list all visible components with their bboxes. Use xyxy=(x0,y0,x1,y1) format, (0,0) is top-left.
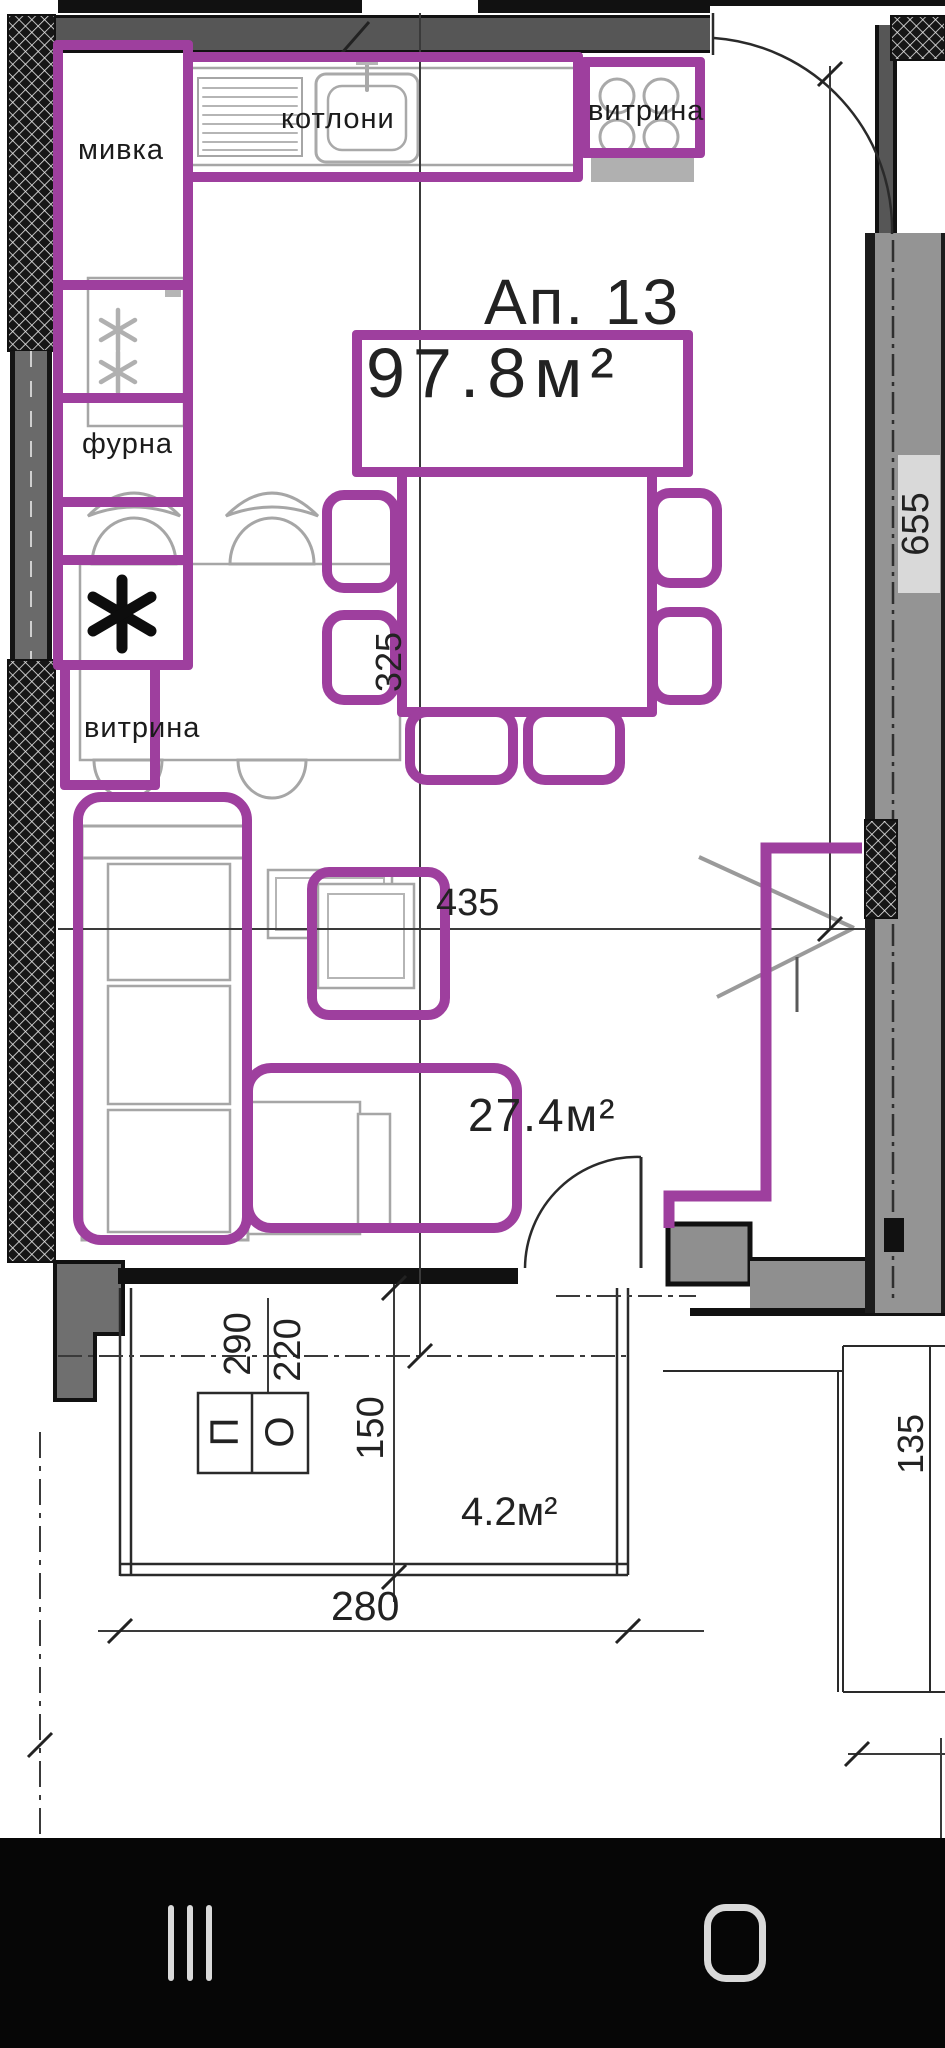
right-wall-hatch-mid xyxy=(865,820,897,918)
dimension-text-655: 655 xyxy=(897,492,935,555)
dimension-text-220: 220 xyxy=(269,1318,307,1381)
unit-area: 97.8м² xyxy=(366,338,622,408)
left-wall-hatch-bottom xyxy=(8,660,55,1262)
dimension-text-435: 435 xyxy=(436,884,499,922)
floor-plan-screenshot: мивка котлони витрина фурна витрина Ап. … xyxy=(0,0,945,2048)
living-area-label: 27.4м² xyxy=(468,1092,616,1138)
annotation-fridge-box xyxy=(53,280,193,403)
left-wall-step xyxy=(55,1262,123,1400)
annotation-chair-6 xyxy=(523,707,625,785)
entry-threshold xyxy=(668,1224,750,1284)
label-hob: котлони xyxy=(281,105,395,134)
left-wall-hatch-top xyxy=(8,15,55,351)
annotation-asterisk-box xyxy=(53,555,193,670)
recents-icon xyxy=(168,1905,212,1981)
balcony-area-label: 4.2м² xyxy=(461,1492,557,1532)
dimension-text-150: 150 xyxy=(352,1396,390,1459)
home-button[interactable] xyxy=(655,1838,815,2048)
right-wall-hatch-top xyxy=(891,16,945,60)
label-oven: фурна xyxy=(82,430,173,459)
android-navbar xyxy=(0,1838,945,2048)
balcony-door-arc xyxy=(525,1157,641,1268)
dimension-text-290: 290 xyxy=(219,1312,257,1375)
dimension-text-325: 325 xyxy=(371,632,407,692)
annotation-chair-5 xyxy=(405,707,518,785)
entrance-door-arc xyxy=(714,38,892,234)
unit-label: Ап. 13 xyxy=(484,270,680,334)
annotation-chair-1 xyxy=(322,490,400,593)
annotation-chair-4 xyxy=(648,607,722,705)
annotation-sofa xyxy=(73,792,252,1245)
dimension-text-135: 135 xyxy=(893,1414,929,1474)
label-vitrine-top: витрина xyxy=(588,97,704,126)
annotation-wardrobe-path xyxy=(669,848,862,1228)
annotation-dining-table xyxy=(397,467,657,717)
annotation-armchair xyxy=(307,867,450,1020)
home-icon xyxy=(704,1904,766,1982)
label-sink: мивка xyxy=(78,136,164,165)
recents-button[interactable] xyxy=(110,1838,270,2048)
window-mark-o: О xyxy=(260,1416,300,1447)
window-mark-p: П xyxy=(205,1418,245,1447)
label-vitrine-left: витрина xyxy=(84,714,200,743)
dimension-text-280: 280 xyxy=(331,1586,399,1627)
annotation-chair-3 xyxy=(648,488,722,588)
